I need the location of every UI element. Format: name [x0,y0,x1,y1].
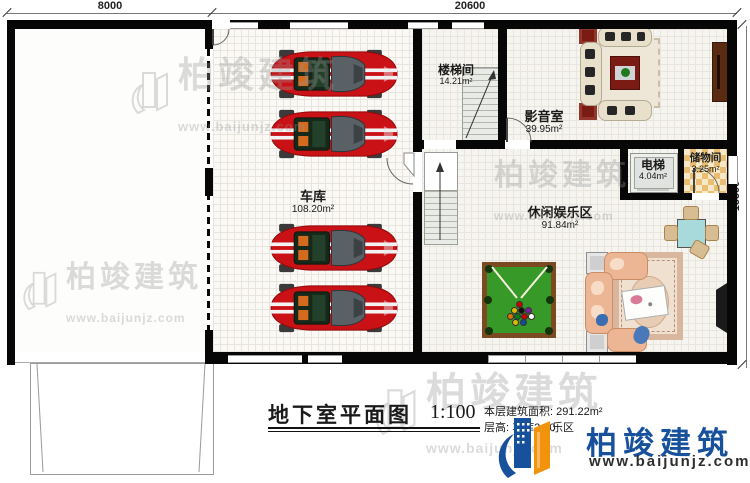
window [228,355,302,363]
media-sofa-left [580,42,602,106]
courtyard-ramp-divider [15,362,207,363]
sports-car [265,282,400,334]
driveway-ramp [30,363,214,475]
media-area: 39.95m² [504,124,584,135]
media-name: 影音室 [504,110,584,124]
leisure-area: 91.84m² [512,220,608,231]
courtyard-floor [15,29,205,352]
media-sofa-top [598,27,652,47]
stairwell-label: 楼梯间 14.21m² [424,64,488,87]
window [230,22,258,29]
window [488,355,636,363]
sports-car [265,222,400,274]
elevator-label: 电梯 4.04m² [629,159,677,182]
wall-left [7,20,15,365]
sports-car [265,108,400,160]
drawing-title: 地下室平面图 [268,399,412,429]
leisure-coffee-table [621,285,669,321]
chair [683,206,699,220]
window [728,156,738,184]
title-rule-thin [268,431,480,432]
company-logo: 柏竣建筑 www.baijunjz.com [492,408,748,483]
window [452,22,484,29]
title-rule-thick [268,427,480,429]
garage-label: 车库 108.20m² [268,190,358,215]
garage-area: 108.20m² [268,204,358,215]
wall-elevator-bottom [620,193,737,200]
garage-open-side-dashed [207,49,210,330]
storage-area: 3.25m² [683,165,728,175]
chair [705,225,719,241]
window [290,22,348,29]
entry-door-gap [212,20,230,29]
media-sofa-bottom [598,100,652,121]
person-figure [596,314,608,326]
column [205,330,213,352]
media-label: 影音室 39.95m² [504,110,584,135]
door-opening [505,140,530,149]
opening-landing [424,140,456,149]
dimension-label-8000: 8000 [65,0,155,12]
window [308,355,342,363]
media-coffee-table [610,56,640,90]
basement-floorplan: 8000 20600 15500 [0,0,750,483]
garage-name: 车库 [268,190,358,204]
wall-top [7,20,737,29]
door-opening [413,152,422,192]
elevator-area: 4.04m² [629,172,677,182]
storage-label: 储物间 3.25m² [683,153,728,174]
leisure-side-table [586,331,608,353]
leisure-label: 休闲娱乐区 91.84m² [512,206,608,231]
stairwell-area: 14.21m² [424,77,488,87]
dimension-label-20600: 20600 [425,0,515,12]
pool-table [482,262,556,338]
window [408,22,438,29]
wall-middle [413,140,737,149]
chair [664,225,678,241]
wall-screen [716,283,727,333]
company-logo-icon [492,412,554,482]
column [205,29,213,49]
dimension-line-right [746,26,747,368]
door-opening [692,193,719,200]
tv-cabinet [712,42,728,102]
stair-landing [424,152,458,192]
company-logo-url: www.baijunjz.com [589,453,750,470]
dimension-line-top [7,13,737,14]
drawing-scale: 1:100 [430,401,476,424]
storage-name: 储物间 [683,153,728,165]
sports-car [265,48,400,100]
leisure-name: 休闲娱乐区 [512,206,608,220]
leisure-stairs [424,190,458,245]
